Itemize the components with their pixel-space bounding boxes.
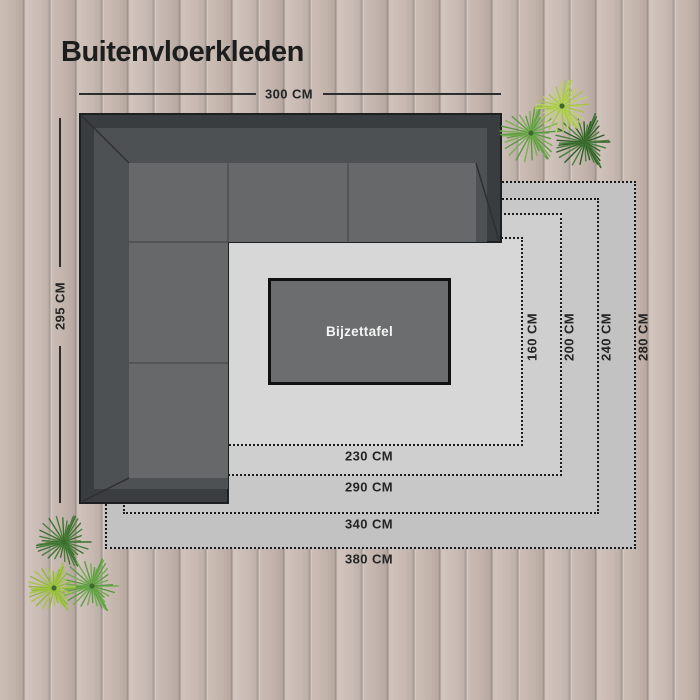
rug-340-width-label: 340 CM — [345, 517, 393, 532]
rug-230-height-label: 160 CM — [525, 313, 540, 361]
sofa-seats — [129, 163, 476, 478]
page-title: Buitenvloerkleden — [61, 36, 304, 69]
sofa-height-line-top — [59, 118, 61, 267]
corner-sofa — [79, 113, 503, 505]
rug-380-width-label: 380 CM — [345, 552, 393, 567]
sofa-height-line-bottom — [59, 346, 61, 503]
rug-290-height-label: 200 CM — [562, 313, 577, 361]
rug-340-height-label: 240 CM — [599, 313, 614, 361]
sofa-width-line-right — [323, 93, 501, 95]
sofa-width-label: 300 CM — [265, 87, 313, 102]
outdoor-rug-size-diagram: Buitenvloerkleden 230 CM 290 CM 340 CM 3… — [0, 0, 700, 700]
sofa-width-line-left — [79, 93, 256, 95]
sofa-height-label: 295 CM — [53, 282, 68, 330]
rug-380-height-label: 280 CM — [636, 313, 651, 361]
